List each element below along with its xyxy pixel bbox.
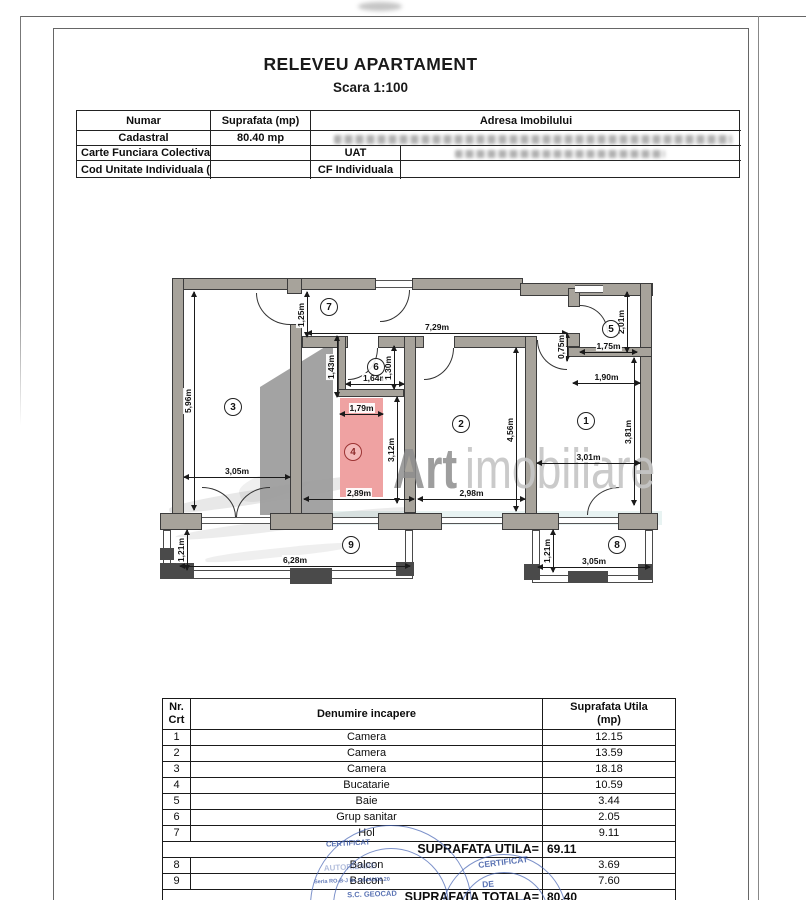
- room-number-circle: 2: [452, 415, 470, 433]
- dimension-arrow: [303, 496, 309, 502]
- table-cell: Hol: [191, 826, 543, 842]
- dimension-arrow: [184, 529, 190, 535]
- dimension-arrow: [632, 349, 638, 355]
- dimension-arrow: [513, 506, 519, 512]
- dimension-line: 1,21m: [553, 530, 554, 572]
- dimension-label: 3,05m: [581, 556, 607, 566]
- table-cell: 3: [163, 762, 191, 778]
- dimension-arrow: [399, 381, 405, 387]
- sum-value: 69.11: [543, 842, 676, 858]
- table-cell: Camera: [191, 730, 543, 746]
- dimension-arrow: [183, 474, 189, 480]
- dimension-line: 2,89m: [304, 499, 414, 500]
- table-cell: Bucatarie: [191, 778, 543, 794]
- room-number-circle: 9: [342, 536, 360, 554]
- sum-label: SUPRAFATA UTILA=: [163, 842, 543, 858]
- table-cell: 8: [163, 858, 191, 874]
- dimension-arrow: [191, 505, 197, 511]
- table-cell: Camera: [191, 762, 543, 778]
- dimension-line: 2,01m: [627, 292, 628, 352]
- dimension-label: 1,43m: [326, 353, 336, 379]
- dimension-label: 2,98m: [458, 488, 484, 498]
- scanned-document-page: RELEVEU APARTAMENT Scara 1:100 Numar Sup…: [0, 0, 811, 900]
- col-header-denumire: Denumire incapere: [191, 699, 543, 730]
- table-cell: Balcon: [191, 858, 543, 874]
- room-number-circle: 6: [367, 358, 385, 376]
- dimension-arrow: [378, 411, 384, 417]
- dimension-arrow: [345, 381, 351, 387]
- dimension-arrow: [624, 291, 630, 297]
- dimension-line: 1,79m: [340, 414, 383, 415]
- table-cell: 2: [163, 746, 191, 762]
- dimension-arrow: [624, 347, 630, 353]
- dimension-arrow: [394, 396, 400, 402]
- dimension-arrow: [631, 357, 637, 363]
- dimension-arrow: [635, 460, 641, 466]
- dimension-arrow: [417, 496, 423, 502]
- room-number-circle: 4: [344, 443, 362, 461]
- dimension-arrow: [405, 563, 411, 569]
- room-number-circle: 1: [577, 412, 595, 430]
- dimension-line: 2,98m: [418, 499, 525, 500]
- dimension-arrow: [391, 345, 397, 351]
- table-row: 8Balcon3.69: [163, 858, 676, 874]
- dimension-arrow: [537, 564, 543, 570]
- dimension-arrow: [191, 291, 197, 297]
- dimension-line: 6,28m: [180, 566, 410, 567]
- dimension-arrow: [579, 349, 585, 355]
- table-cell: 9: [163, 874, 191, 890]
- table-cell: 4: [163, 778, 191, 794]
- dimension-arrow: [409, 496, 415, 502]
- table-cell: 10.59: [543, 778, 676, 794]
- table-cell: Camera: [191, 746, 543, 762]
- dimension-line: 4,56m: [516, 348, 517, 511]
- dimension-arrow: [304, 291, 310, 297]
- dimension-arrow: [184, 565, 190, 571]
- dimension-line: 1,30m: [394, 346, 395, 389]
- table-cell: 1: [163, 730, 191, 746]
- dimension-line: 1,90m: [573, 383, 640, 384]
- table-row: 7Hol9.11: [163, 826, 676, 842]
- dimension-line: 3,05m: [184, 477, 290, 478]
- room-number-circle: 8: [608, 536, 626, 554]
- dimension-arrow: [306, 330, 312, 336]
- table-row: 6Grup sanitar2.05: [163, 810, 676, 826]
- table-cell: Baie: [191, 794, 543, 810]
- dimension-label: 7,29m: [424, 322, 450, 332]
- dimension-line: 3,12m: [397, 397, 398, 503]
- dimension-label: 2,89m: [346, 488, 372, 498]
- table-cell: 9.11: [543, 826, 676, 842]
- table-cell: 3.44: [543, 794, 676, 810]
- dimension-label: 3,05m: [224, 466, 250, 476]
- table-header-row: Nr.Crt Denumire incapere Suprafata Utila…: [163, 699, 676, 730]
- table-row: 5Baie3.44: [163, 794, 676, 810]
- dimension-label: 3,01m: [575, 452, 601, 462]
- dimension-arrow: [334, 392, 340, 398]
- table-cell: 7.60: [543, 874, 676, 890]
- table-cell: 12.15: [543, 730, 676, 746]
- dimension-arrow: [635, 380, 641, 386]
- dimension-label: 1,90m: [593, 372, 619, 382]
- dimension-arrow: [550, 567, 556, 573]
- dimension-line: 3,81m: [634, 358, 635, 505]
- table-cell: Grup sanitar: [191, 810, 543, 826]
- dimension-label: 3,81m: [623, 418, 633, 444]
- dimension-label: 1,25m: [296, 301, 306, 327]
- col-header-nr-crt: Nr.Crt: [163, 699, 191, 730]
- room-number-circle: 5: [602, 320, 620, 338]
- dimension-line: 3,01m: [537, 463, 640, 464]
- room-number-circle: 3: [224, 398, 242, 416]
- dimension-arrow: [339, 411, 345, 417]
- dimension-arrow: [285, 474, 291, 480]
- table-cell: 13.59: [543, 746, 676, 762]
- sum-value: 80.40: [543, 890, 676, 900]
- table-row: 2Camera13.59: [163, 746, 676, 762]
- dimension-label: 4,56m: [505, 416, 515, 442]
- dimension-arrow: [513, 347, 519, 353]
- dimension-arrow: [572, 380, 578, 386]
- dimension-arrow: [550, 529, 556, 535]
- dimension-line: 1,21m: [187, 530, 188, 570]
- dimension-label: 1,21m: [542, 538, 552, 564]
- table-row: 4Bucatarie10.59: [163, 778, 676, 794]
- table-row: 3Camera18.18: [163, 762, 676, 778]
- sum-label: SUPRAFATA TOTALA=: [163, 890, 543, 900]
- dimension-line: 7,29m: [307, 333, 567, 334]
- dimension-arrow: [334, 335, 340, 341]
- table-cell: 7: [163, 826, 191, 842]
- table-cell: 5: [163, 794, 191, 810]
- dimension-label: 1,75m: [595, 341, 621, 351]
- dimension-label: 6,28m: [282, 555, 308, 565]
- dimension-arrow: [631, 500, 637, 506]
- table-cell: 3.69: [543, 858, 676, 874]
- dimension-label: 0,75m: [556, 334, 566, 360]
- table-sum-row: SUPRAFATA UTILA=69.11: [163, 842, 676, 858]
- table-cell: 2.05: [543, 810, 676, 826]
- room-number-circle: 7: [320, 298, 338, 316]
- dimension-label: 5,96m: [183, 388, 193, 414]
- dimension-arrow: [536, 460, 542, 466]
- table-row: 1Camera12.15: [163, 730, 676, 746]
- table-cell: 6: [163, 810, 191, 826]
- dimension-arrow: [391, 384, 397, 390]
- table-cell: Balcon: [191, 874, 543, 890]
- table-cell: 18.18: [543, 762, 676, 778]
- table-row: 9Balcon7.60: [163, 874, 676, 890]
- col-header-suprafata: Suprafata Utila(mp): [543, 699, 676, 730]
- dimension-arrow: [645, 564, 651, 570]
- dimension-line: 1,43m: [337, 336, 338, 397]
- room-areas-table: Nr.Crt Denumire incapere Suprafata Utila…: [162, 698, 676, 900]
- dimension-label: 3,12m: [386, 437, 396, 463]
- dimension-arrow: [520, 496, 526, 502]
- dimension-label: 1,21m: [176, 537, 186, 563]
- dimension-line: 0,75m: [567, 333, 568, 361]
- table-sum-row: SUPRAFATA TOTALA=80.40: [163, 890, 676, 900]
- dimension-label: 1,79m: [348, 403, 374, 413]
